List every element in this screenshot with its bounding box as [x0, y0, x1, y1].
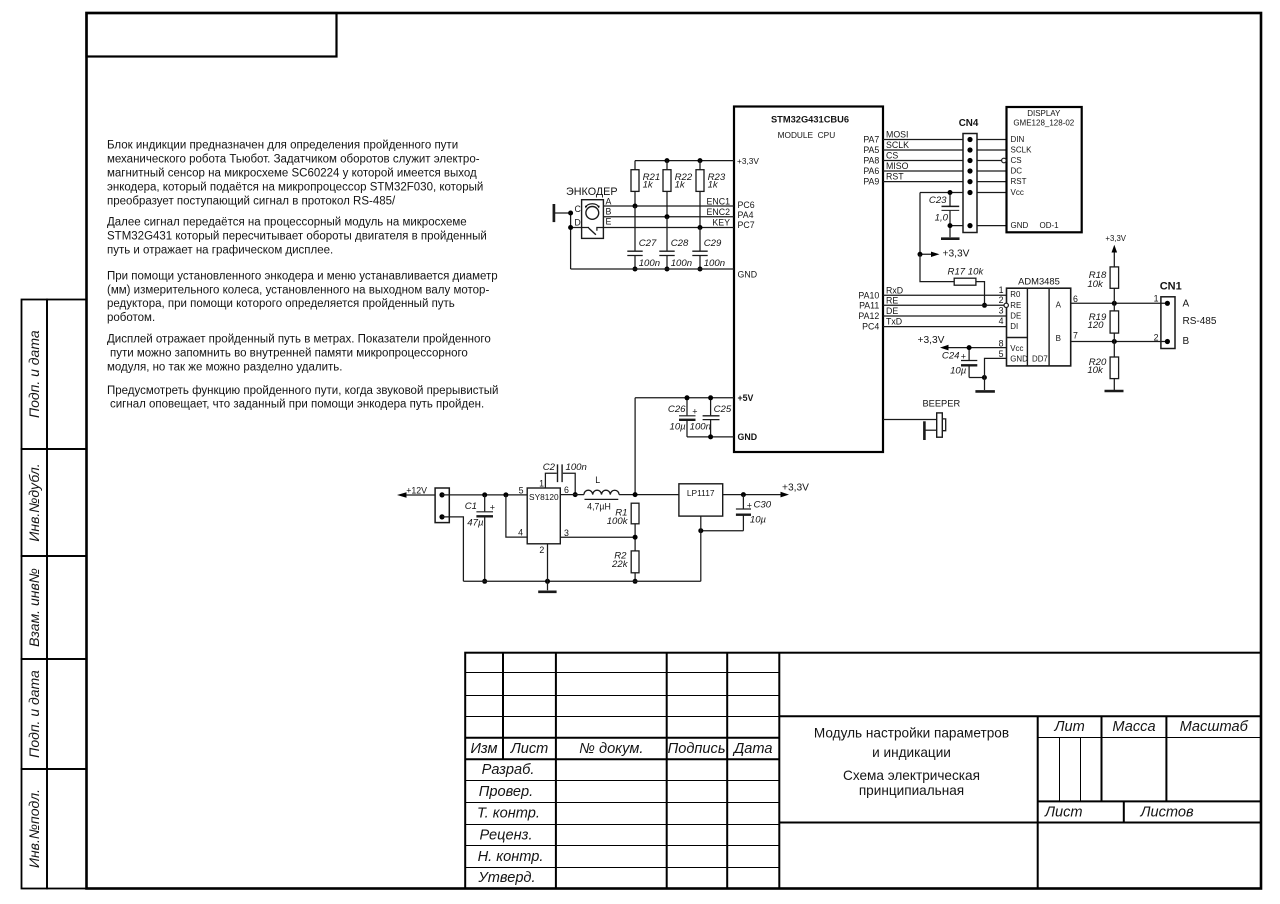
svg-text:GME128_128-02: GME128_128-02: [1013, 119, 1074, 128]
svg-text:BEEPER: BEEPER: [922, 399, 960, 409]
svg-text:магнитный сенсор на микросхеме: магнитный сенсор на микросхеме SC60224 у…: [107, 168, 477, 180]
svg-text:GND: GND: [738, 432, 758, 442]
svg-text:A: A: [1056, 300, 1062, 309]
svg-text:Н. контр.: Н. контр.: [478, 849, 544, 865]
svg-text:SCLK: SCLK: [1011, 146, 1033, 155]
svg-text:Подп. и дата: Подп. и дата: [26, 670, 42, 758]
svg-text:LP1117: LP1117: [687, 488, 715, 498]
svg-text:Утверд.: Утверд.: [477, 870, 535, 886]
svg-text:47µ: 47µ: [467, 517, 484, 528]
svg-text:10µ: 10µ: [950, 366, 967, 377]
svg-text:Разраб.: Разраб.: [482, 762, 535, 778]
svg-text:SCLK: SCLK: [886, 140, 909, 150]
svg-text:MOSI: MOSI: [886, 129, 908, 139]
svg-text:PA9: PA9: [863, 177, 879, 187]
svg-text:2: 2: [999, 295, 1004, 305]
svg-text:GND: GND: [738, 270, 758, 280]
svg-text:GND: GND: [1011, 221, 1029, 230]
svg-text:принципиальная: принципиальная: [859, 783, 964, 798]
svg-text:ADM3485: ADM3485: [1018, 276, 1060, 287]
svg-text:100n: 100n: [690, 421, 711, 432]
svg-text:При помощи установленного энко: При помощи установленного энкодера и мен…: [107, 271, 498, 283]
svg-text:+3,3V: +3,3V: [1105, 234, 1126, 243]
svg-text:PA4: PA4: [738, 210, 754, 220]
svg-text:1k: 1k: [643, 180, 654, 191]
svg-text:Дата: Дата: [732, 741, 773, 757]
svg-text:100n: 100n: [671, 258, 692, 269]
svg-text:5: 5: [999, 349, 1004, 359]
svg-text:SY8120: SY8120: [529, 492, 559, 502]
svg-text:PA8: PA8: [863, 155, 879, 165]
svg-text:B: B: [606, 207, 612, 217]
svg-text:RE: RE: [1010, 301, 1021, 310]
svg-text:KEY: KEY: [712, 218, 730, 228]
svg-text:Реценз.: Реценз.: [479, 827, 532, 843]
svg-text:CS: CS: [886, 150, 898, 160]
svg-text:Провер.: Провер.: [479, 784, 533, 800]
svg-text:+12V: +12V: [406, 485, 427, 495]
svg-text:MISO: MISO: [886, 161, 909, 171]
svg-text:STM32G431CBU6: STM32G431CBU6: [771, 115, 849, 125]
svg-text:C25: C25: [714, 404, 732, 415]
svg-text:100n: 100n: [566, 462, 587, 473]
svg-text:CN4: CN4: [959, 118, 979, 129]
svg-text:L: L: [595, 475, 600, 485]
svg-text:4: 4: [999, 316, 1004, 326]
svg-text:A: A: [1183, 299, 1190, 310]
svg-text:7: 7: [1073, 330, 1078, 340]
svg-text:+3,3V: +3,3V: [782, 482, 809, 493]
svg-text:+: +: [961, 351, 966, 361]
svg-text:Т. контр.: Т. контр.: [477, 806, 540, 822]
svg-text:DE: DE: [886, 306, 898, 316]
svg-text:Взам. инв№: Взам. инв№: [26, 568, 42, 647]
svg-text:TxD: TxD: [886, 316, 902, 326]
svg-text:сигнал оповещает, что заданный: сигнал оповещает, что заданный при помощ…: [110, 399, 484, 411]
svg-text:RE: RE: [886, 295, 898, 305]
svg-text:RST: RST: [886, 171, 904, 181]
svg-text:22k: 22k: [611, 559, 629, 570]
svg-text:GND: GND: [1010, 354, 1028, 363]
svg-text:Модуль настройки параметров: Модуль настройки параметров: [814, 725, 1009, 740]
svg-text:редуктора, при помощи которого: редуктора, при помощи которого определяе…: [107, 298, 455, 310]
svg-text:Лист: Лист: [510, 741, 549, 757]
svg-text:DIN: DIN: [1011, 135, 1025, 144]
svg-text:10µ: 10µ: [750, 515, 767, 526]
svg-text:1: 1: [1154, 294, 1159, 304]
svg-text:Предусмотреть функцию пройденн: Предусмотреть функцию пройденного пути, …: [107, 385, 498, 397]
svg-text:2: 2: [539, 545, 544, 555]
svg-text:RS-485: RS-485: [1183, 316, 1217, 327]
svg-text:Инв.№подл.: Инв.№подл.: [26, 789, 42, 868]
svg-text:(мм) измерительного колеса, ус: (мм) измерительного колеса, установленно…: [107, 284, 489, 296]
svg-text:PA5: PA5: [863, 145, 879, 155]
svg-text:C26: C26: [668, 404, 686, 415]
svg-text:R0: R0: [1010, 290, 1021, 299]
svg-text:+3,3V: +3,3V: [737, 156, 759, 166]
svg-text:Листов: Листов: [1140, 805, 1195, 821]
svg-text:1: 1: [539, 478, 544, 488]
svg-text:B: B: [1056, 334, 1061, 343]
svg-text:120: 120: [1087, 320, 1104, 331]
svg-text:и индикации: и индикации: [872, 745, 951, 760]
svg-text:Подпись: Подпись: [668, 741, 726, 757]
svg-text:RxD: RxD: [886, 285, 903, 295]
svg-text:1k: 1k: [708, 180, 719, 191]
svg-text:3: 3: [999, 305, 1004, 315]
svg-text:+5V: +5V: [738, 393, 754, 403]
svg-text:пути можно запомнить во внутре: пути можно запомнить во внутренней памят…: [110, 347, 468, 359]
svg-text:Изм: Изм: [470, 741, 497, 757]
svg-text:PA11: PA11: [859, 301, 879, 311]
svg-text:C30: C30: [754, 500, 772, 511]
svg-text:Инв.№дубл.: Инв.№дубл.: [26, 463, 42, 541]
svg-text:C: C: [575, 204, 582, 214]
svg-text:10k: 10k: [1087, 279, 1104, 290]
svg-text:RST: RST: [1011, 177, 1027, 186]
svg-text:DD7: DD7: [1032, 354, 1048, 363]
svg-text:C24: C24: [942, 350, 960, 361]
svg-text:PA12: PA12: [858, 311, 879, 321]
svg-text:Подп. и дата: Подп. и дата: [26, 330, 42, 418]
svg-text:C28: C28: [671, 238, 689, 249]
svg-text:Далее сигнал передаётся на про: Далее сигнал передаётся на процессорный …: [107, 216, 467, 228]
svg-text:+3,3V: +3,3V: [918, 335, 945, 346]
svg-text:100n: 100n: [639, 258, 660, 269]
svg-text:4,7µH: 4,7µH: [587, 502, 611, 512]
svg-text:C2: C2: [543, 462, 556, 473]
svg-text:C23: C23: [929, 195, 947, 206]
svg-text:Масштаб: Масштаб: [1180, 719, 1249, 735]
svg-text:энкодера, который подаётся на: энкодера, который подаётся на микропроце…: [107, 182, 483, 194]
svg-text:DI: DI: [1010, 322, 1018, 331]
svg-text:C27: C27: [639, 238, 657, 249]
svg-text:3: 3: [564, 528, 569, 538]
svg-text:B: B: [1183, 336, 1190, 347]
svg-text:MODULE CPU: MODULE CPU: [778, 130, 836, 140]
svg-text:модуля, но так же можно раздел: модуля, но так же можно разделно удалить…: [107, 362, 343, 374]
svg-text:D: D: [574, 218, 580, 228]
svg-text:Лит: Лит: [1053, 719, 1084, 735]
svg-text:PC4: PC4: [862, 322, 879, 332]
svg-text:Блок индикции предназначен для: Блок индикции предназначен для определен…: [107, 139, 458, 151]
svg-text:PA6: PA6: [863, 166, 879, 176]
svg-text:CN1: CN1: [1160, 281, 1182, 293]
svg-text:роботом.: роботом.: [107, 312, 155, 324]
svg-text:+: +: [747, 501, 752, 511]
svg-text:100n: 100n: [704, 258, 725, 269]
svg-text:Схема электрическая: Схема электрическая: [843, 768, 980, 783]
svg-text:1k: 1k: [675, 180, 686, 191]
svg-text:Дисплей отражает пройденный пу: Дисплей отражает пройденный путь в метра…: [107, 334, 491, 346]
svg-text:DE: DE: [1010, 311, 1021, 320]
svg-text:PA10: PA10: [858, 290, 879, 300]
svg-text:PC6: PC6: [738, 200, 755, 210]
svg-text:STM32G431 который пересчитывае: STM32G431 который пересчитывает обороты …: [107, 231, 487, 243]
svg-text:DISPLAY: DISPLAY: [1027, 109, 1061, 118]
svg-text:A: A: [606, 196, 612, 206]
svg-text:Vcc: Vcc: [1010, 344, 1023, 353]
svg-text:CS: CS: [1011, 156, 1022, 165]
svg-text:5: 5: [519, 485, 524, 495]
svg-text:C1: C1: [465, 501, 477, 512]
svg-text:OD-1: OD-1: [1040, 221, 1060, 230]
svg-text:2: 2: [1154, 333, 1159, 343]
svg-text:+3,3V: +3,3V: [943, 248, 970, 259]
svg-text:Масса: Масса: [1112, 719, 1155, 735]
svg-text:ENC1: ENC1: [707, 196, 731, 206]
svg-text:4: 4: [518, 528, 523, 538]
svg-text:8: 8: [999, 338, 1004, 348]
svg-text:PC7: PC7: [738, 220, 755, 230]
svg-text:E: E: [606, 216, 612, 226]
svg-text:10µ: 10µ: [669, 421, 686, 432]
svg-text:Vcc: Vcc: [1011, 188, 1024, 197]
svg-text:PA7: PA7: [863, 134, 879, 144]
svg-text:преобразует поступающий сигнал: преобразует поступающий сигнал в протоко…: [107, 196, 396, 208]
svg-text:R17 10k: R17 10k: [948, 266, 985, 277]
svg-text:механического робота Тьюбот. З: механического робота Тьюбот. Задатчиком …: [107, 153, 480, 165]
svg-text:№ докум.: № докум.: [579, 741, 643, 757]
svg-text:6: 6: [564, 485, 569, 495]
svg-text:путь и отражает на графическом: путь и отражает на графическом дисплее.: [107, 245, 333, 257]
svg-text:100k: 100k: [607, 516, 629, 527]
svg-text:ENC2: ENC2: [707, 207, 731, 217]
svg-text:10k: 10k: [1087, 365, 1104, 376]
svg-text:1: 1: [999, 285, 1004, 295]
svg-text:+: +: [692, 406, 697, 416]
svg-text:6: 6: [1073, 294, 1078, 304]
svg-text:1,0: 1,0: [935, 212, 949, 223]
svg-text:+: +: [490, 502, 495, 512]
svg-text:Лист: Лист: [1044, 805, 1083, 821]
svg-text:DC: DC: [1011, 167, 1023, 176]
svg-text:C29: C29: [704, 238, 722, 249]
